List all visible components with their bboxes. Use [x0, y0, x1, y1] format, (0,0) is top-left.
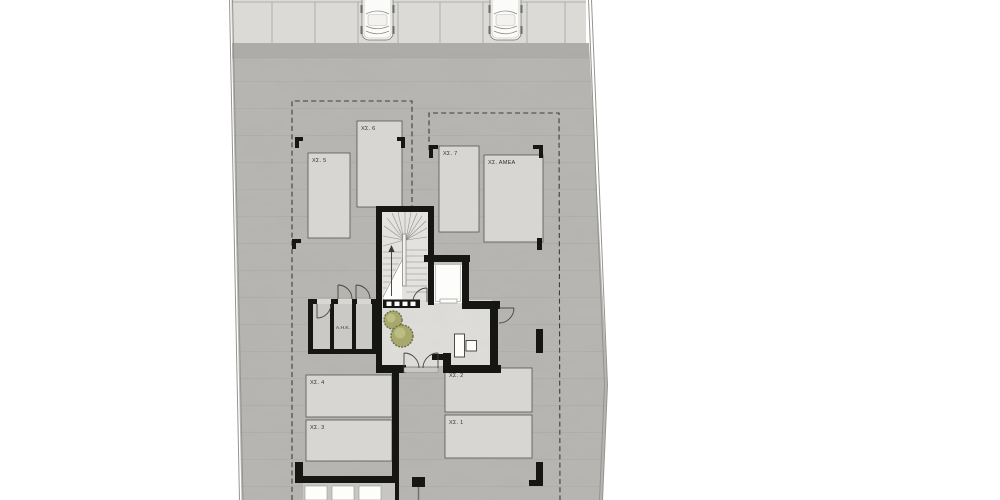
parking-space-label-6: ΧΣ. 6	[361, 126, 375, 132]
parking-space-label-amea: ΧΣ. ΑΜΕΑ	[488, 160, 516, 166]
parked-car-icon	[489, 0, 523, 40]
parking-space-6	[357, 121, 402, 207]
parking-space-7	[439, 146, 479, 232]
parking-space-amea	[484, 155, 543, 242]
floor-plan-page: ΧΣ. 5 ΧΣ. 6 ΧΣ. 7 ΧΣ. ΑΜΕΑ ΧΣ. 4 ΧΣ. 3 Χ…	[0, 0, 1000, 500]
sidewalk	[231, 0, 586, 43]
parking-space-label-1: ΧΣ. 1	[449, 420, 463, 426]
parking-space-label-5: ΧΣ. 5	[312, 158, 326, 164]
floor-grille	[383, 300, 420, 309]
floor-plan-drawing: ΧΣ. 5 ΧΣ. 6 ΧΣ. 7 ΧΣ. ΑΜΕΑ ΧΣ. 4 ΧΣ. 3 Χ…	[0, 0, 1000, 500]
elevator	[434, 262, 462, 303]
parking-space-label-2: ΧΣ. 2	[449, 373, 463, 379]
parking-space-5	[308, 153, 350, 238]
parking-space-label-4: ΧΣ. 4	[310, 380, 324, 386]
parking-space-label-3: ΧΣ. 3	[310, 425, 324, 431]
utility-rooms: Α.Η.Κ.	[308, 299, 378, 354]
parked-car-icon	[361, 0, 395, 40]
elevator-door	[440, 299, 457, 303]
parking-space-label-7: ΧΣ. 7	[443, 151, 457, 157]
room-label-ahk: Α.Η.Κ.	[336, 325, 350, 331]
